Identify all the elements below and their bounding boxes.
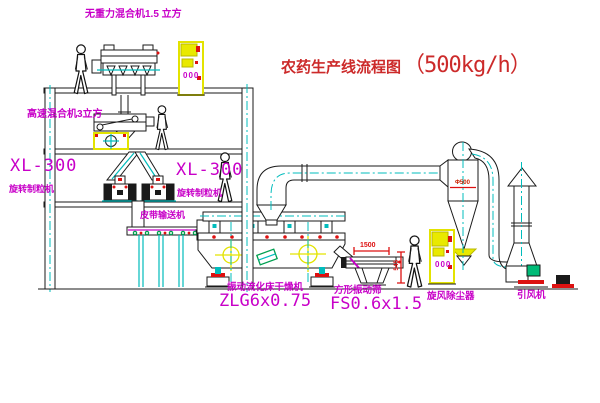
label-screen-model: FS0.6x1.5 (330, 296, 422, 313)
title-chinese: 农药生产线流程图 (281, 56, 401, 77)
page-title: 农药生产线流程图 （500kg/h） (281, 47, 531, 79)
title-capacity: （500kg/h） (403, 47, 531, 79)
worker-figure-floor2 (156, 106, 168, 150)
label-granulator-left-name: 旋转制粒机 (9, 185, 54, 194)
label-fan: 引风机 (517, 291, 546, 301)
label-cyclone: 旋风除尘器 (427, 292, 475, 302)
dimension-cyclone-inlet: Φ500 (455, 180, 470, 186)
label-gravity-free-mixer: 无重力混合机1.5 立方 (85, 10, 182, 20)
building-column-right (242, 84, 253, 292)
dimension-screen-height: 545 (394, 260, 401, 271)
flow-diagram-canvas: 农药生产线流程图 （500kg/h） 无重力混合机1.5 立方 高速混合机3立方… (0, 0, 600, 403)
label-granulator-right-name: 旋转制粒机 (177, 189, 222, 198)
label-belt-conveyor: 皮带输送机 (140, 211, 185, 220)
rotary-granulator-right (140, 176, 176, 201)
panel1-readout: 000 (183, 72, 199, 80)
highspeed-mixer (94, 95, 154, 149)
control-panel-2 (428, 230, 456, 284)
induced-draft-fan (506, 265, 574, 288)
control-panel-1 (177, 42, 205, 95)
label-dryer-model: ZLG6x0.75 (219, 293, 311, 310)
panel2-readout: 000 (435, 261, 451, 269)
label-highspeed-mixer: 高速混合机3立方 (27, 110, 103, 120)
label-granulator-right-model: XL-300 (176, 162, 243, 179)
exhaust-stack (506, 162, 537, 278)
worker-figure-ground (407, 236, 421, 287)
dimension-screen-length: 1500 (360, 242, 376, 249)
label-granulator-left-model: XL-300 (10, 158, 77, 175)
worker-figure-roof (74, 45, 88, 94)
